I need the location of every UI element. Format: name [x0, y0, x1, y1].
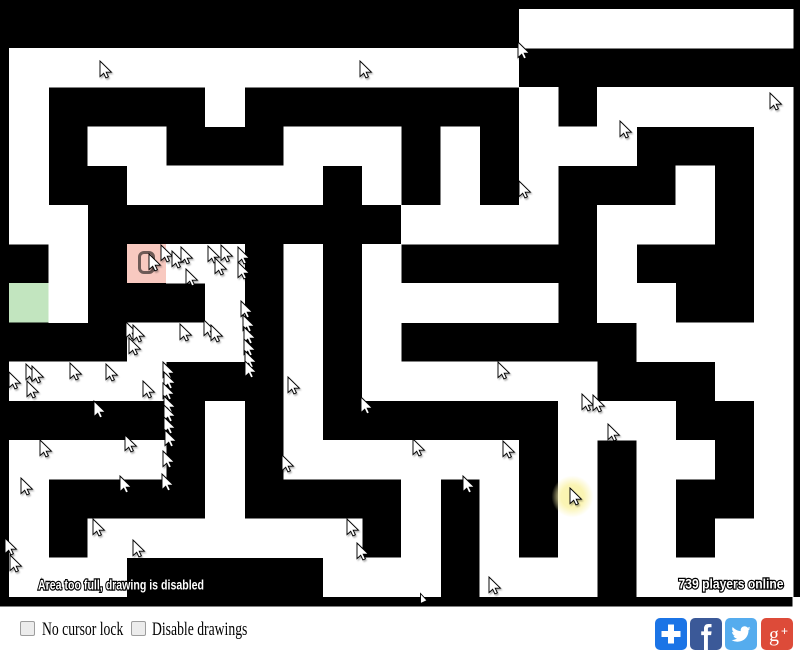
svg-text:Area too full, drawing is disa: Area too full, drawing is disabled: [38, 578, 204, 593]
svg-text:g: g: [769, 624, 779, 646]
svg-text:+: +: [781, 624, 788, 638]
svg-text:739 players online: 739 players online: [679, 577, 784, 592]
